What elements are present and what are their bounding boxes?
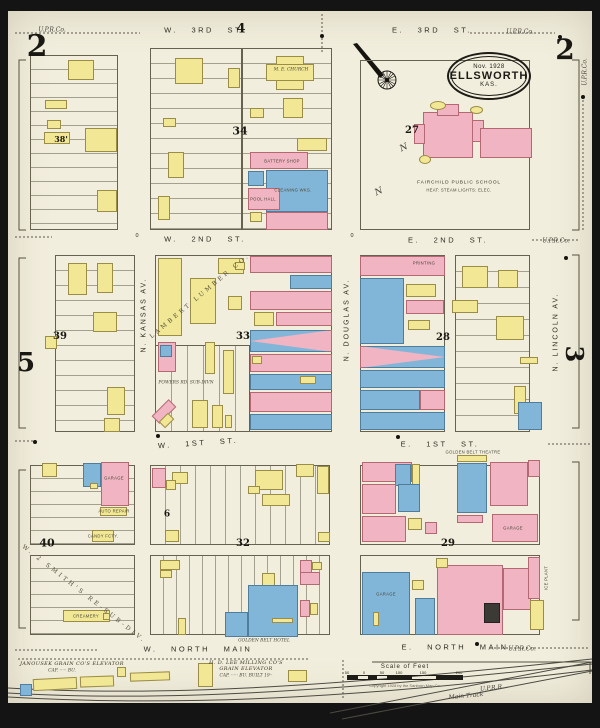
block-number: 34 [232,126,247,137]
building [528,460,540,477]
building [288,670,307,682]
building [160,345,172,357]
building [362,484,396,514]
building [80,675,114,687]
utility-dot [475,642,479,646]
building [436,558,448,568]
building [272,618,293,623]
building [470,106,483,114]
building [212,405,223,428]
building [362,516,406,542]
block-number: 28 [436,333,450,343]
map-content-layer: W. 3RD ST.E. 3RD ST.W. 2ND ST.E. 2ND ST.… [0,0,600,728]
building [437,565,503,635]
building [160,570,172,578]
avenue-label: N. KANSAS AV. [141,277,148,352]
map-note: U.P.R.R. [480,683,505,692]
block-number: 33 [236,332,250,342]
building [262,494,290,506]
building [395,464,411,486]
building [528,557,540,599]
map-label: CAP. ····· BU. BUILT 19·· [220,674,273,679]
building [300,376,316,384]
building [457,515,483,523]
building [520,357,538,364]
curb-marker: 0 [350,233,353,239]
map-label: CREAMERY [73,614,99,619]
map-label: GRAIN ELEVATOR [219,666,272,672]
building [452,300,478,313]
scale-segment [377,676,387,679]
avenue-label: N. DOUGLAS AV. [344,279,351,362]
utility-dot [156,434,160,438]
building [223,350,234,394]
scale-segment [368,676,378,679]
building [47,120,61,129]
building [408,518,422,530]
building [192,400,208,428]
building [228,296,242,310]
building [42,463,57,477]
page-number: 5 [17,350,35,376]
building [312,562,322,570]
copyright-note: Copyright 1928 by the Sanborn Map Co. [347,683,463,688]
map-label: GARAGE [376,592,396,597]
building [175,58,203,84]
scale-tick: 150 [420,670,427,675]
building [205,342,215,374]
building [457,463,487,513]
building [484,603,500,623]
building [20,684,32,696]
scale-tick-labels: 50050100150200 [347,670,463,675]
building [457,455,487,462]
scale-bar [347,675,463,680]
scale-segment [412,676,437,679]
building [296,464,314,477]
map-label: PRINTING [413,261,435,266]
building [165,530,179,542]
street-label: E. 3RD ST. [392,26,472,35]
map-date: Nov. 1928 [473,64,504,70]
building [228,68,240,88]
building [496,316,524,340]
building [250,108,264,118]
map-state: KAS. [480,82,498,88]
building [430,101,446,110]
building [101,462,129,506]
building [97,190,117,212]
building [300,600,310,617]
building [425,522,437,534]
map-label: CLEANING WKS. [274,188,311,193]
building [412,580,424,590]
building [250,256,332,273]
map-note: U.P.R.Co. [508,646,536,653]
building [225,415,232,428]
map-label: GARAGE [104,476,124,481]
building [423,112,473,158]
scale-segment [348,676,358,679]
block-number: 38' [54,135,68,143]
scale-tick: 0 [363,670,365,675]
building [398,484,420,512]
building [317,466,329,494]
street-label: E. 2ND ST. [408,236,488,245]
page-number: 2 [555,36,574,64]
map-label: GARAGE [503,526,523,531]
scale-of-feet: Scale of Feet 50050100150200 Copyright 1… [347,664,463,688]
building [225,612,248,637]
scale-tick: 50 [345,670,349,675]
building [163,118,176,127]
building [107,387,125,415]
utility-dot [33,440,37,444]
block-number: 32 [236,539,250,549]
map-label: POWERS RD. SUB-DIVN [158,381,213,386]
map-city-title: ELLSWORTH [450,70,529,82]
building [276,312,332,326]
building [420,390,445,410]
building [97,263,113,293]
block-number: 29 [441,539,455,549]
building [68,263,87,295]
building [93,312,117,332]
building [406,284,436,297]
building [419,155,431,164]
building [360,412,445,430]
building [360,390,420,410]
building [250,212,262,222]
avenue-label: N. LINCOLN AV. [553,293,560,372]
building [178,618,186,635]
building [254,312,274,326]
building [90,483,98,489]
building [160,560,180,570]
building [130,671,170,681]
street-label: E. NORTH MAIN [401,643,508,652]
utility-dot [396,435,400,439]
building [68,60,94,80]
curb-marker: 0 [135,233,138,239]
utility-dot [558,35,562,39]
building [415,598,435,635]
building [248,486,260,494]
utility-dot [320,34,324,38]
block-number: 4 [236,23,245,36]
building [250,291,332,310]
scale-tick: 50 [380,670,384,675]
map-note: U.P.R.Co. [582,58,589,86]
map-label: GOLDEN BELT HOTEL [238,639,290,644]
map-label: M. E. CHURCH [274,68,309,73]
map-note: U.P.R.Co. [38,27,66,34]
sanborn-map-sheet: W. 3RD ST.E. 3RD ST.W. 2ND ST.E. 2ND ST.… [0,0,600,728]
street-label: W. 1ST ST. [158,436,239,451]
building [250,374,332,390]
building [104,418,120,432]
building [462,266,488,288]
building [480,128,532,158]
building [290,275,332,289]
building [408,320,430,330]
building [158,196,170,220]
building [318,532,330,542]
building [248,585,298,637]
block-number: 6 [164,511,170,520]
street-label: E. 1ST ST. [401,440,480,449]
building [530,600,544,630]
map-label: HEAT: STEAM LIGHTS: ELEC. [426,188,491,193]
street-label: W. 2ND ST. [164,235,246,244]
block-number: 39 [53,332,67,342]
scale-tick: 100 [396,670,403,675]
building [412,464,420,486]
map-label: BATTERY SHOP [264,159,299,164]
street-label: W. NORTH MAIN [144,645,253,654]
map-note: U.P.R.Co. [542,238,570,245]
building [360,278,404,344]
block-number: 27 [405,126,419,136]
building [152,468,166,488]
map-note: U.P.R.Co. [506,29,534,36]
map-label: CANDY FCTY. [88,534,119,539]
scale-segment [358,676,368,679]
building [266,212,328,230]
map-label: POOL HALL [250,197,276,202]
building [198,663,213,687]
building [166,480,176,490]
building [518,402,542,430]
map-label: ICE PLANT [544,566,549,590]
building [362,572,410,635]
block-number: 40 [39,538,54,549]
building [85,128,117,152]
page-number: 3 [562,346,586,363]
building [248,171,264,186]
building [360,370,445,388]
scale-tick: 200 [456,670,463,675]
map-title-oval: Nov. 1928 ELLSWORTH KAS. [447,52,531,100]
building [490,462,528,506]
utility-dot [564,256,568,260]
building [498,270,518,288]
map-label: GOLDEN BELT THEATRE [446,450,501,455]
map-note: Main Track [448,691,483,701]
page-number: 2 [27,32,48,62]
building [117,667,126,677]
scale-segment [436,676,462,679]
map-label: JANOUSEK GRAIN CO'S ELEVATOR [20,661,124,667]
building [297,138,327,151]
building [406,300,444,314]
building [252,356,262,364]
building [503,568,531,610]
building [250,354,332,372]
building [250,392,332,412]
building [168,152,184,178]
building [45,100,67,109]
building [33,677,78,691]
map-label: AUTO REPAIR [98,509,129,514]
building [373,612,379,626]
building [310,603,318,615]
building [300,572,320,585]
street-label: W. 3RD ST. [164,26,246,35]
utility-dot [581,95,585,99]
building [250,414,332,430]
map-label: CAP. ····· BU. [48,669,76,674]
building [283,98,303,118]
building [360,256,445,276]
scale-segment [387,676,412,679]
map-label: FAIRCHILD PUBLIC SCHOOL [417,181,501,186]
